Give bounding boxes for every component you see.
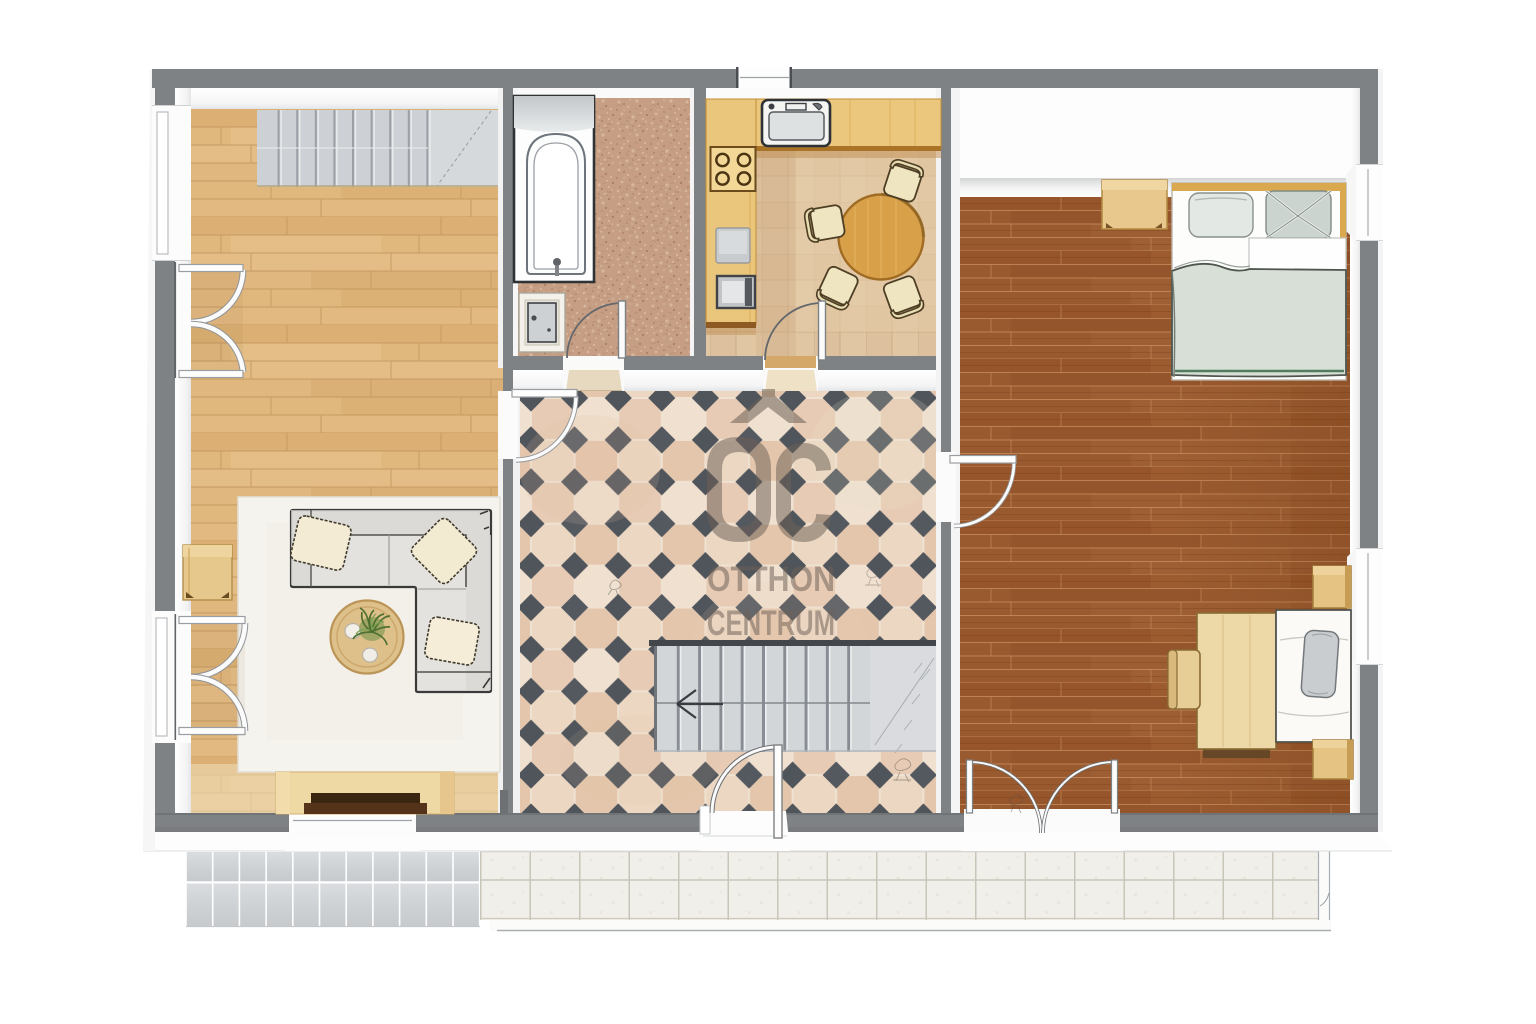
svg-text:OTTHON: OTTHON — [707, 560, 835, 599]
svg-text:CENTRUM: CENTRUM — [707, 604, 835, 643]
